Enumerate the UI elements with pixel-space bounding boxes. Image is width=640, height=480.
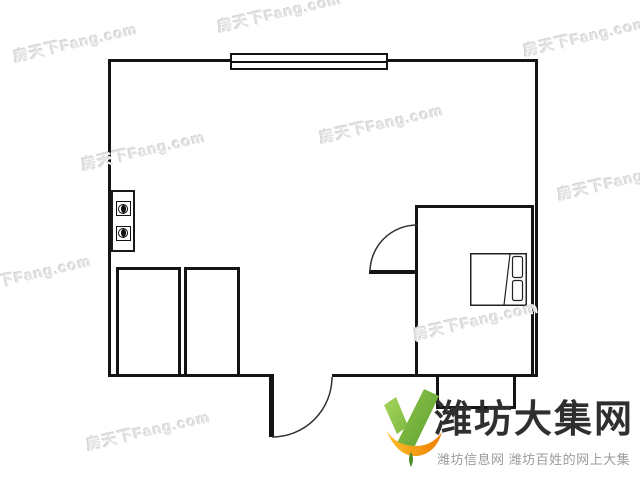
entry-door-arc [272, 377, 332, 437]
entry-door-leaf [269, 376, 274, 437]
entry-door-opening [274, 373, 332, 379]
stove-burner-icon [116, 201, 131, 216]
stove-burner-icon [116, 226, 131, 241]
bay-balcony [436, 374, 516, 409]
floor-plan [0, 0, 640, 480]
cabinet-left [116, 267, 181, 377]
cabinet-right [184, 267, 240, 377]
bed-icon [470, 253, 527, 306]
bedroom-door-leaf [369, 270, 418, 274]
floorplan-image: 房天下Fang.com 房天下Fang.com 房天下Fang.com 房天下F… [0, 0, 640, 480]
stove-unit [111, 190, 135, 252]
window-icon [230, 53, 388, 70]
